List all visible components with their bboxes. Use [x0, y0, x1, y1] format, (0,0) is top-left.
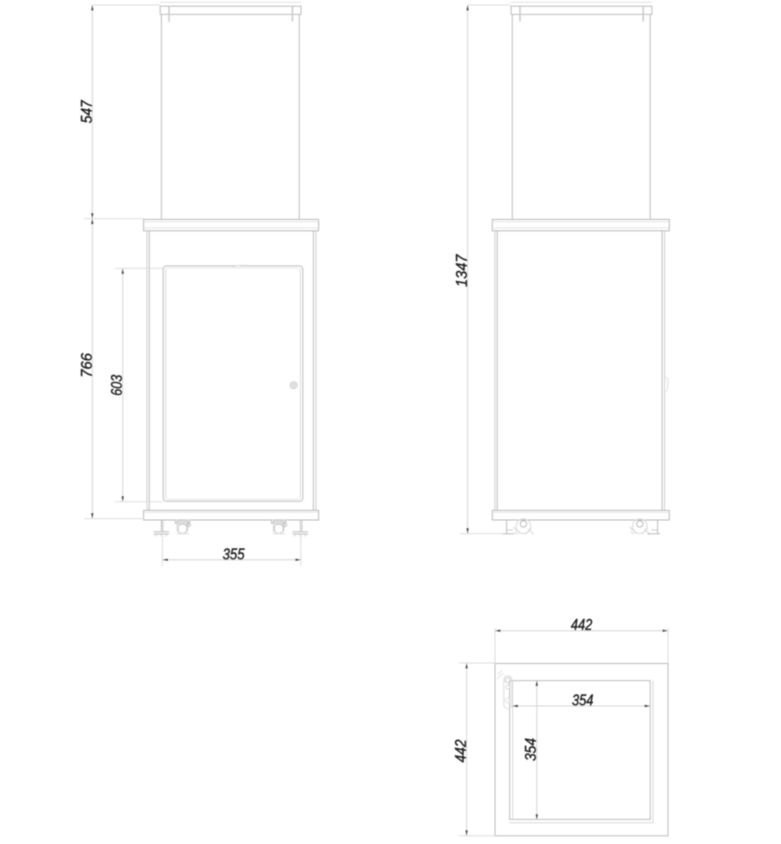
svg-text:354: 354: [523, 738, 540, 761]
svg-text:354: 354: [572, 692, 594, 709]
svg-text:355: 355: [223, 546, 245, 563]
svg-text:442: 442: [453, 739, 470, 762]
svg-text:603: 603: [109, 375, 126, 396]
svg-text:1347: 1347: [454, 253, 471, 287]
svg-text:547: 547: [79, 99, 96, 123]
svg-text:766: 766: [79, 353, 96, 378]
svg-text:442: 442: [571, 617, 593, 634]
